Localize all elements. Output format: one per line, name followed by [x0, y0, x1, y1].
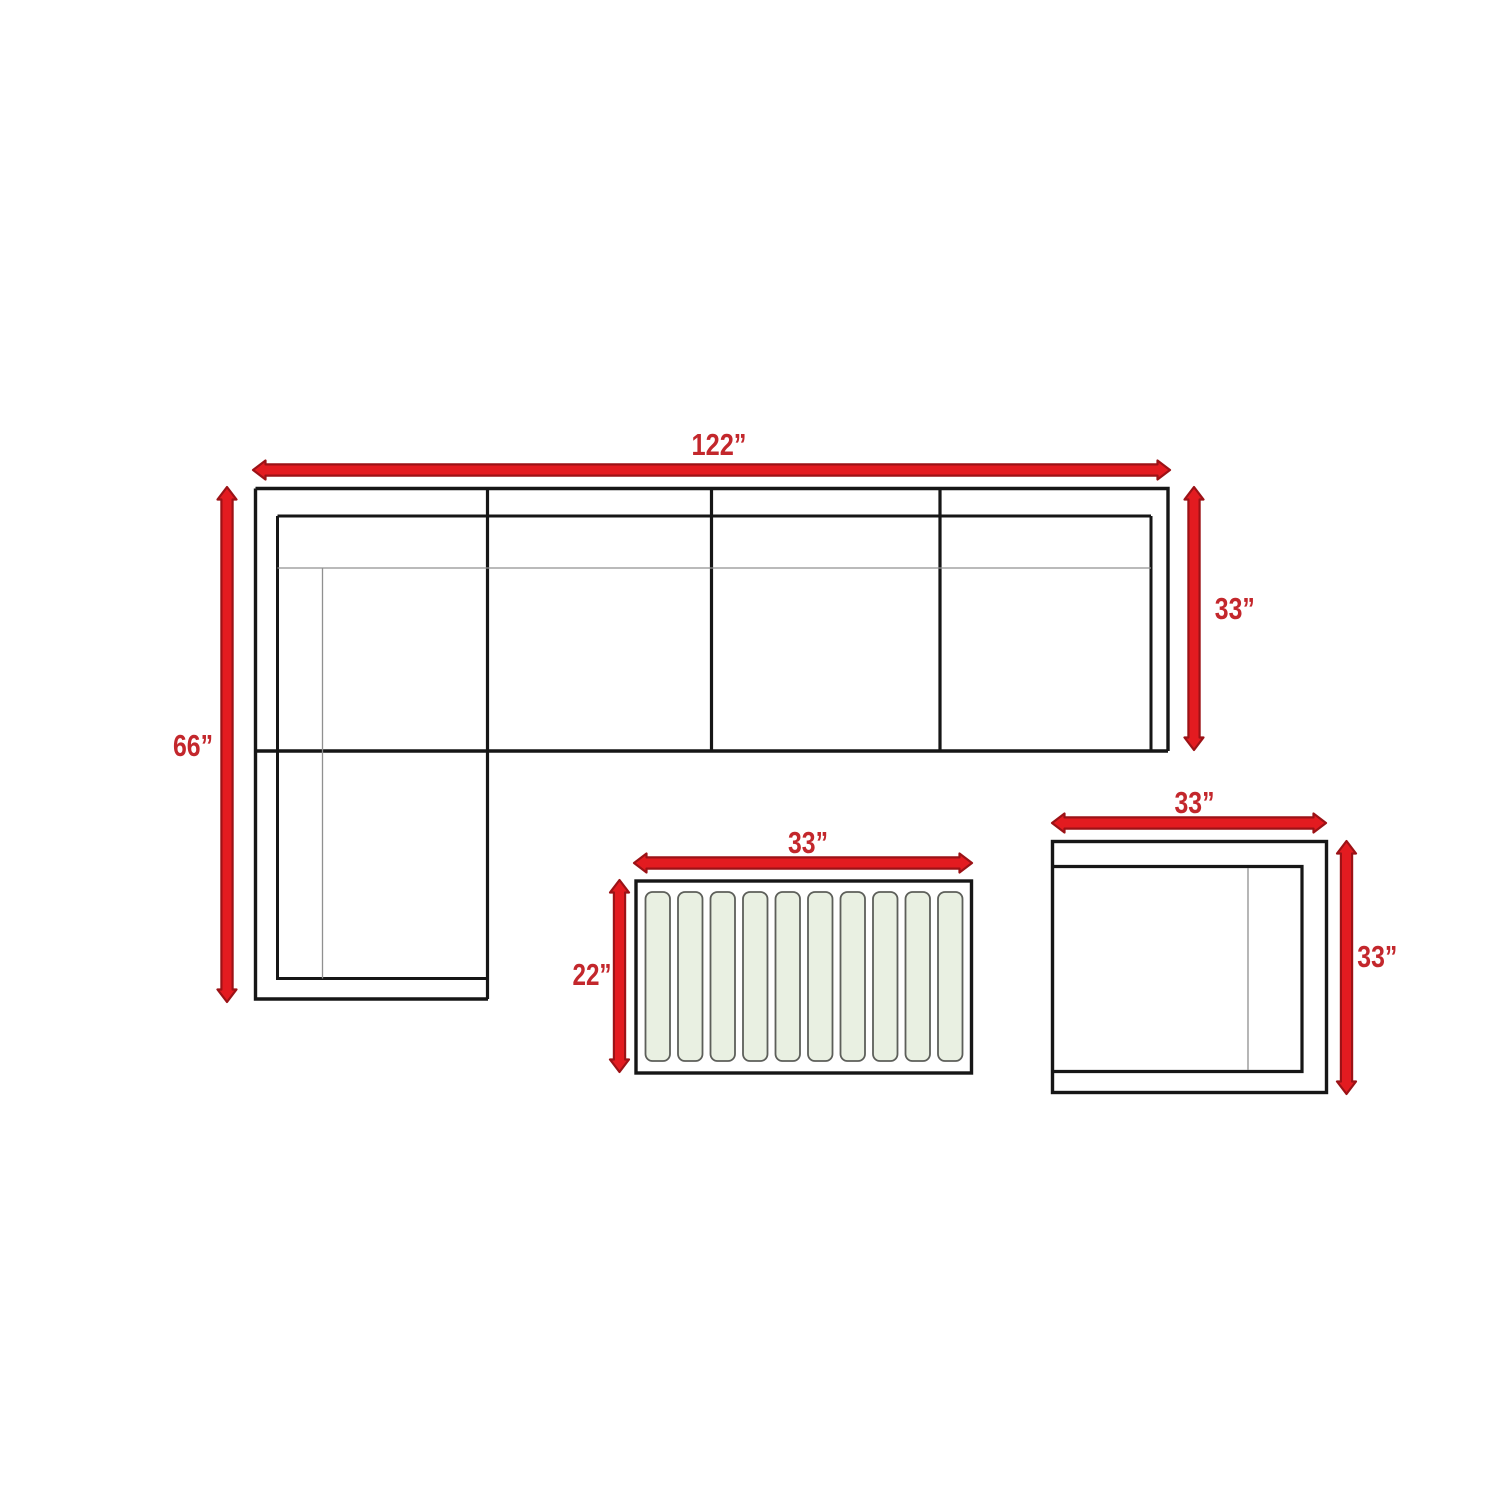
svg-text:33”: 33” — [788, 825, 828, 860]
svg-text:33”: 33” — [1175, 785, 1215, 820]
svg-text:66”: 66” — [173, 728, 213, 763]
svg-text:22”: 22” — [573, 957, 612, 992]
svg-text:33”: 33” — [1357, 939, 1397, 974]
svg-text:122”: 122” — [692, 427, 747, 462]
svg-text:33”: 33” — [1215, 591, 1255, 626]
